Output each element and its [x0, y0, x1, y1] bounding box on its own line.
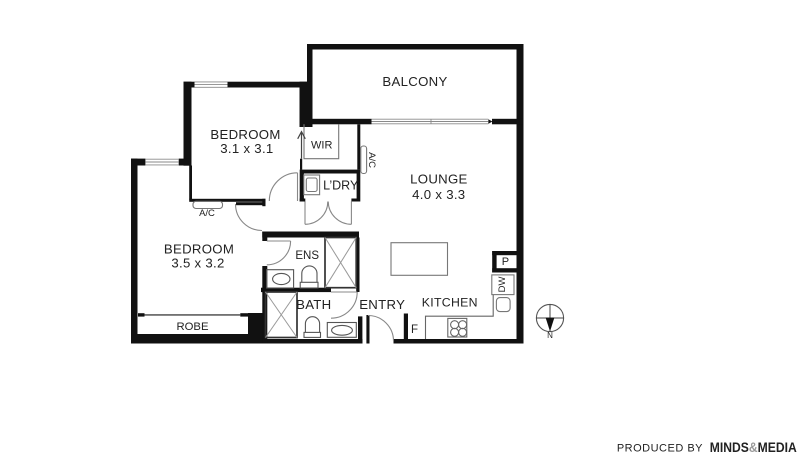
svg-text:ENTRY: ENTRY: [359, 297, 405, 312]
svg-text:F: F: [411, 324, 418, 336]
svg-text:3.1 x 3.1: 3.1 x 3.1: [220, 141, 273, 156]
svg-text:A/C: A/C: [366, 152, 377, 168]
svg-text:BALCONY: BALCONY: [382, 74, 447, 89]
svg-text:P: P: [502, 256, 509, 268]
svg-text:ROBE: ROBE: [176, 321, 208, 333]
svg-text:3.5 x 3.2: 3.5 x 3.2: [171, 255, 224, 270]
svg-text:BATH: BATH: [296, 297, 331, 312]
svg-text:N: N: [547, 331, 553, 340]
svg-text:KITCHEN: KITCHEN: [422, 296, 478, 310]
svg-text:BEDROOM: BEDROOM: [210, 127, 280, 142]
svg-text:PRODUCED BY: PRODUCED BY: [617, 442, 703, 454]
svg-text:L’DRY: L’DRY: [323, 178, 359, 192]
svg-text:ENS: ENS: [295, 250, 319, 262]
svg-text:DW: DW: [497, 277, 508, 293]
svg-text:A/C: A/C: [199, 208, 215, 219]
svg-text:LOUNGE: LOUNGE: [410, 171, 468, 186]
svg-text:4.0 x 3.3: 4.0 x 3.3: [412, 187, 465, 202]
svg-text:MINDS&MEDIA: MINDS&MEDIA: [710, 439, 798, 455]
svg-text:WIR: WIR: [311, 140, 332, 152]
